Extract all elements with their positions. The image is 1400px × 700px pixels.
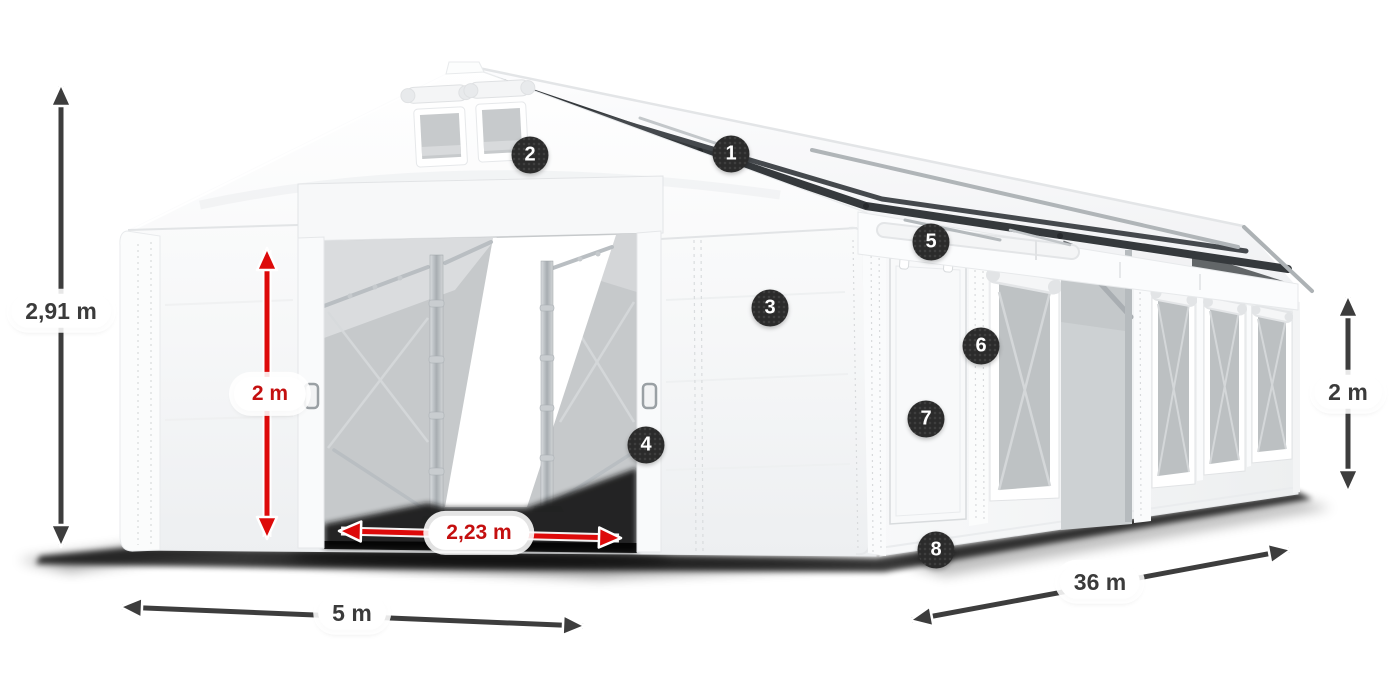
tent-dimensions-diagram: 2,91 m 2 m 2,23 m 5 m 36 m 2 m 1 2 3 4 5…	[0, 0, 1400, 700]
side-window-2	[1151, 288, 1198, 489]
callout-6-window: 6	[963, 328, 1000, 365]
callout-2-gable-vents: 2	[512, 137, 549, 174]
label-tent-width: 5 m	[318, 596, 386, 630]
ridge-cap	[446, 62, 484, 74]
entrance-lintel	[298, 176, 663, 241]
label-entrance-height: 2 m	[234, 377, 306, 411]
front-entrance	[324, 233, 637, 553]
side-door	[890, 249, 966, 524]
label-side-wall-height: 2 m	[1314, 375, 1382, 409]
side-window-1	[986, 268, 1062, 501]
callout-1-roof: 1	[713, 136, 750, 173]
tent-illustration	[0, 0, 1400, 700]
door-handle	[305, 384, 318, 408]
callout-7-side-door: 7	[908, 401, 945, 438]
callout-8-skirt: 8	[918, 532, 955, 569]
side-window-3	[1203, 297, 1247, 475]
side-window-4	[1252, 306, 1294, 464]
entrance-frame-right	[637, 231, 661, 552]
label-tent-length: 36 m	[1060, 565, 1140, 599]
label-ridge-height: 2,91 m	[11, 294, 111, 328]
callout-4-entrance-frame: 4	[628, 427, 665, 464]
callout-3-front-wall: 3	[752, 290, 789, 327]
callout-5-eave: 5	[913, 224, 950, 261]
label-entrance-width: 2,23 m	[428, 516, 529, 550]
window-roll-cover	[1210, 303, 1240, 309]
door-handle	[643, 384, 656, 408]
front-left-corner	[120, 231, 160, 551]
